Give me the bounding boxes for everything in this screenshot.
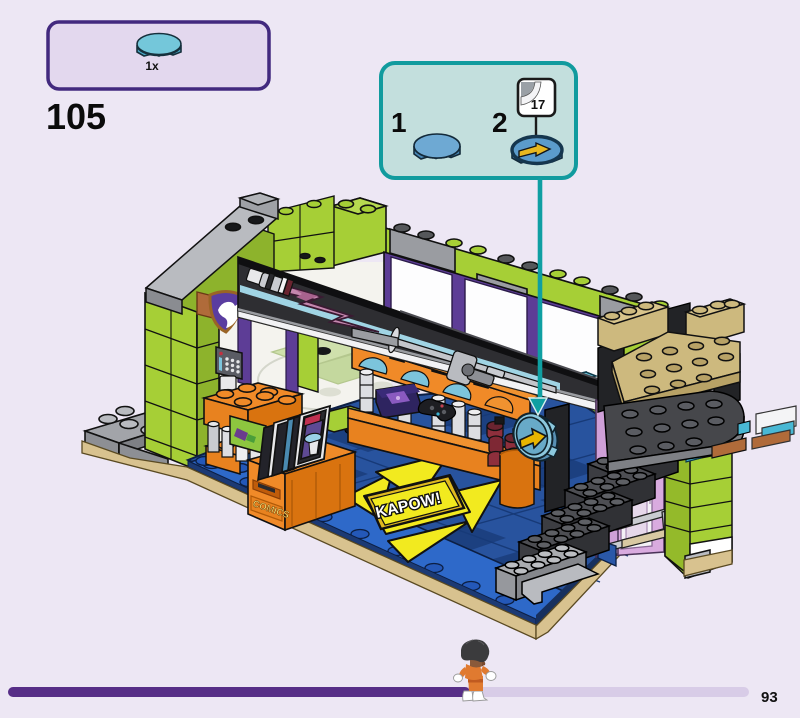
svg-text:93: 93	[761, 689, 778, 706]
svg-text:2: 2	[492, 107, 508, 138]
svg-text:1: 1	[391, 107, 407, 138]
svg-text:105: 105	[46, 96, 106, 137]
svg-text:1x: 1x	[145, 59, 159, 73]
svg-text:17: 17	[531, 97, 545, 112]
